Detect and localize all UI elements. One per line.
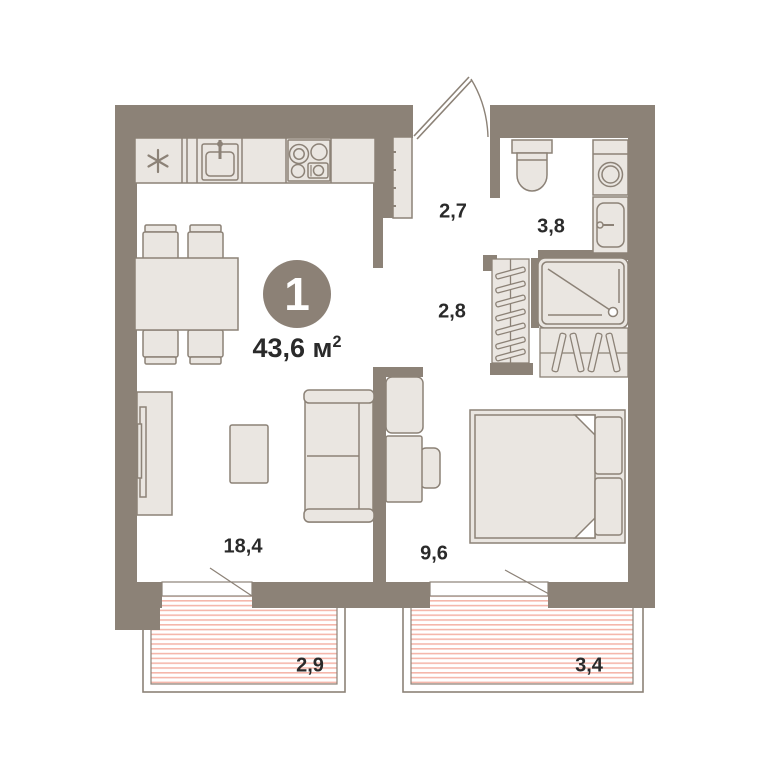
unit-total-area: 43,6 м2 bbox=[230, 333, 364, 364]
chair bbox=[188, 225, 223, 259]
tv-console bbox=[137, 392, 172, 515]
room-area-label-corridor: 2,8 bbox=[438, 301, 466, 324]
bed bbox=[470, 410, 625, 543]
total-area-unit: м bbox=[313, 333, 333, 363]
dining-table bbox=[135, 258, 238, 330]
coffee-table bbox=[230, 425, 268, 483]
floor-plan-drawing bbox=[0, 0, 768, 768]
sofa bbox=[304, 390, 374, 522]
wall-shoerack-stub bbox=[490, 363, 533, 375]
pillow bbox=[595, 417, 622, 474]
chair bbox=[143, 225, 178, 259]
wall-right bbox=[628, 105, 655, 608]
wall-bottom-2 bbox=[252, 582, 430, 608]
wall-kitchen-hall bbox=[373, 105, 393, 218]
chair bbox=[143, 330, 178, 364]
shower-icon bbox=[538, 258, 628, 328]
total-area-exponent: 2 bbox=[333, 333, 342, 351]
wall-living-bedroom bbox=[373, 367, 386, 608]
stove-icon bbox=[288, 140, 330, 181]
kitchen-sink-icon bbox=[202, 140, 238, 180]
room-area-label-bathroom: 3,8 bbox=[537, 216, 565, 239]
pillow bbox=[595, 478, 622, 535]
room-area-label-balcony-right: 3,4 bbox=[575, 655, 603, 678]
wall-bottom-1 bbox=[115, 582, 162, 608]
wall-bottom-3 bbox=[548, 582, 655, 608]
wardrobe bbox=[386, 377, 423, 433]
desk-chair bbox=[420, 448, 440, 488]
chair bbox=[188, 330, 223, 364]
room-area-label-living: 18,4 bbox=[224, 536, 263, 559]
kitchen-counter bbox=[135, 138, 375, 183]
desk bbox=[386, 436, 422, 502]
room-area-label-hallway: 2,7 bbox=[439, 201, 467, 224]
balcony-door-living bbox=[162, 582, 252, 596]
wall-corner-notch bbox=[115, 608, 160, 630]
wall-left bbox=[115, 105, 137, 608]
bed-blanket bbox=[475, 415, 595, 538]
floor-plan: 1 43,6 м2 18,4 9,6 2,7 2,8 3,8 2,9 3,4 bbox=[0, 0, 768, 768]
room-area-label-bedroom: 9,6 bbox=[420, 543, 448, 566]
washing-machine-icon bbox=[593, 140, 628, 195]
room-area-label-balcony-left: 2,9 bbox=[296, 655, 324, 678]
bathroom-sink-icon bbox=[593, 197, 628, 253]
unit-rooms-badge: 1 bbox=[263, 260, 331, 328]
unit-rooms-number: 1 bbox=[284, 267, 310, 321]
wall-bathroom-left bbox=[490, 138, 500, 198]
shoe-rack bbox=[492, 259, 529, 363]
total-area-value: 43,6 bbox=[252, 333, 305, 363]
wall-top-left bbox=[115, 105, 413, 138]
wall-bedroom-stub bbox=[373, 367, 423, 377]
hanger-wardrobe bbox=[540, 328, 628, 377]
wall-kitchen-hall-low bbox=[373, 218, 383, 268]
